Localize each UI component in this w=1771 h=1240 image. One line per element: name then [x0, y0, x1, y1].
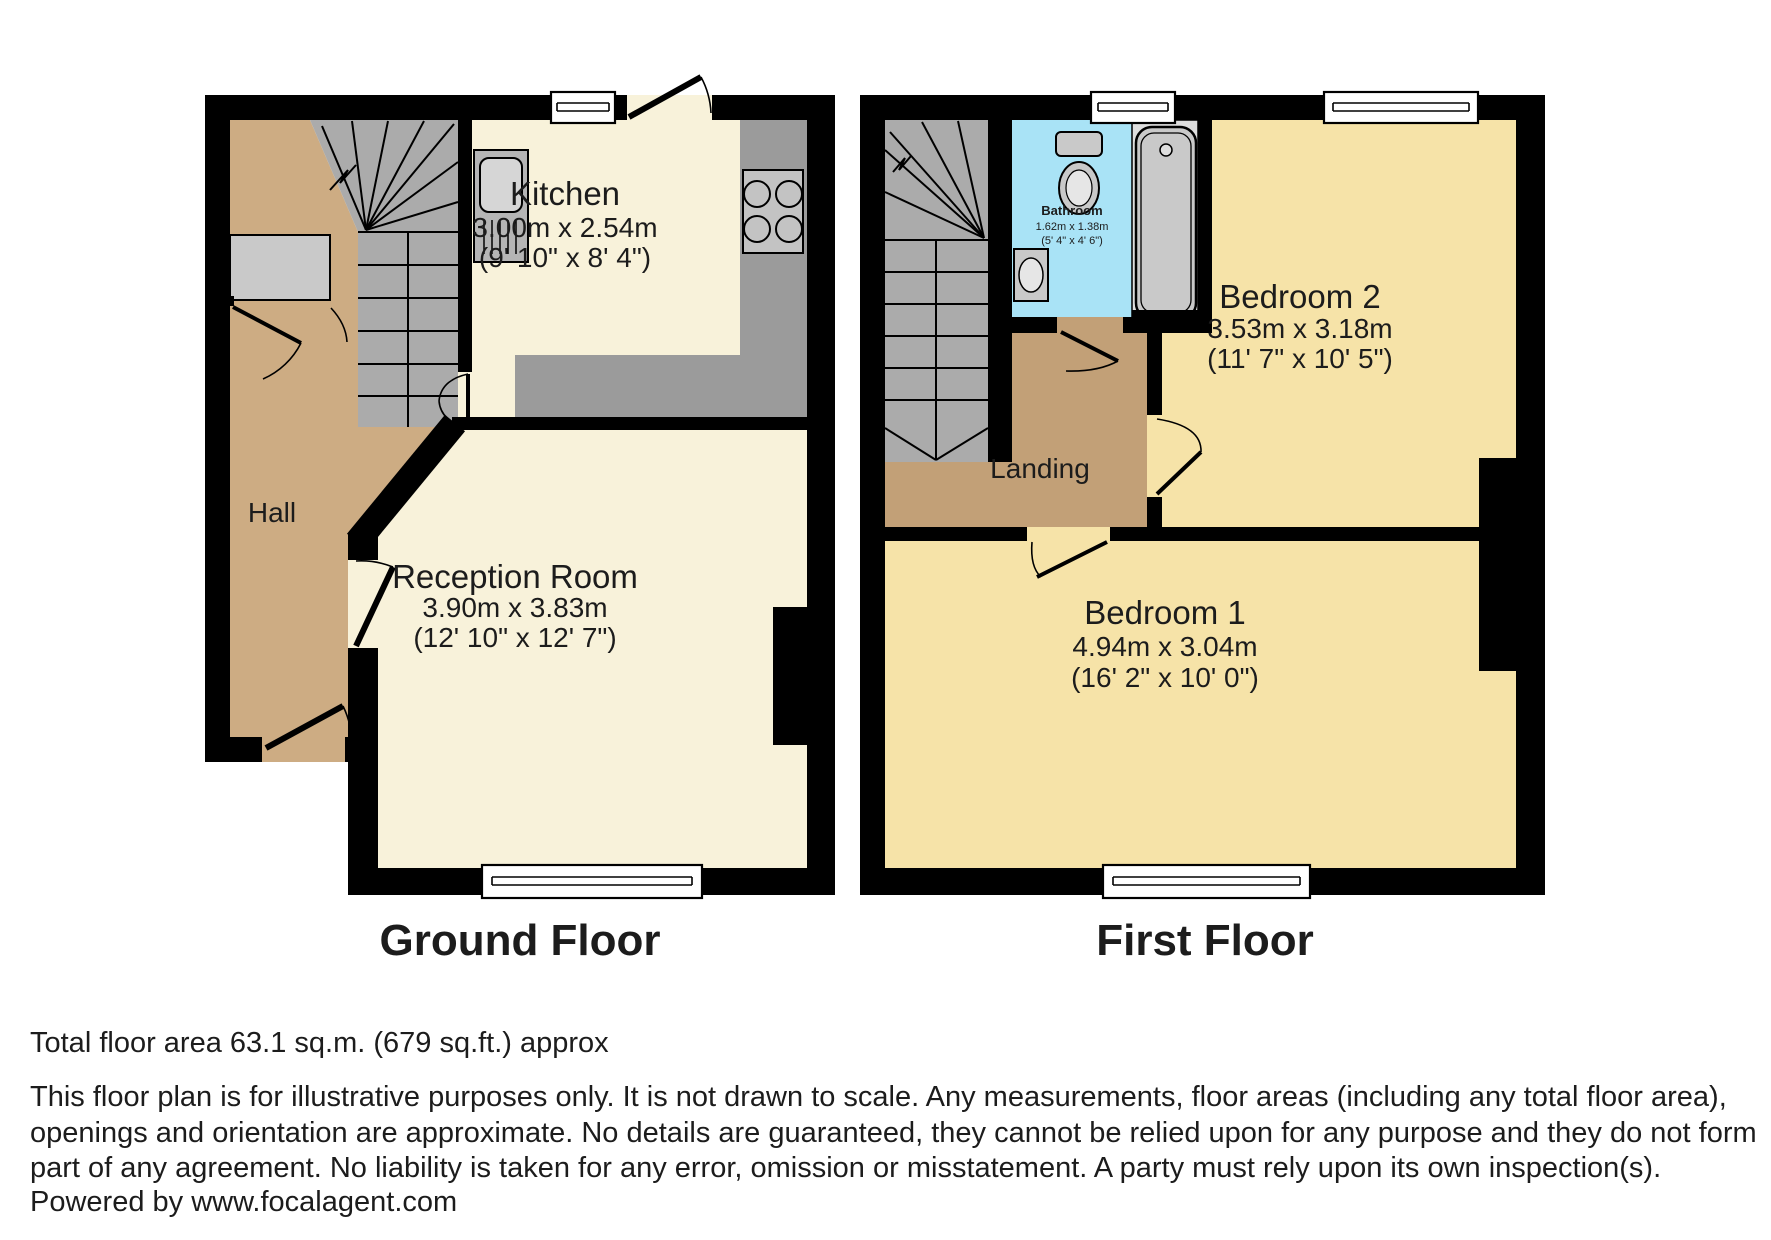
- bedroom1-label: Bedroom 1: [1084, 594, 1245, 631]
- kitchen-counter-bottom: [515, 355, 807, 417]
- bedroom1-dims-imperial: (16' 2" x 10' 0"): [1071, 662, 1259, 693]
- hall-cupboard: [230, 235, 330, 300]
- disclaimer-line-1: This floor plan is for illustrative purp…: [30, 1081, 1727, 1113]
- reception-dims-metric: 3.90m x 3.83m: [422, 592, 607, 623]
- disclaimer-line-3: part of any agreement. No liability is t…: [30, 1152, 1661, 1184]
- bathroom-window: [1091, 92, 1175, 123]
- bathroom-label: Bathroom: [1041, 203, 1102, 218]
- powered-by: Powered by www.focalagent.com: [30, 1186, 457, 1218]
- kitchen-dims-metric: 3.00m x 2.54m: [472, 212, 657, 243]
- hob: [743, 170, 803, 253]
- bedroom2-label: Bedroom 2: [1219, 278, 1380, 315]
- bedroom1-door-opening: [1027, 527, 1110, 541]
- first-floor-title: First Floor: [1096, 916, 1314, 965]
- floorplan-page: Kitchen 3.00m x 2.54m (9' 10" x 8' 4") H…: [0, 0, 1771, 1240]
- bathroom-dims-imperial: (5' 4" x 4' 6"): [1041, 235, 1103, 247]
- kitchen-back-door-opening: [627, 95, 712, 120]
- ground-floor-title: Ground Floor: [379, 916, 660, 965]
- hall-label: Hall: [248, 497, 296, 528]
- bedroom1-dims-metric: 4.94m x 3.04m: [1072, 631, 1257, 662]
- bedroom1-room: [885, 540, 1516, 868]
- bedroom2-door-opening: [1147, 415, 1162, 497]
- ground-floor-plan: Kitchen 3.00m x 2.54m (9' 10" x 8' 4") H…: [205, 77, 835, 898]
- toilet: [1056, 132, 1102, 214]
- bedroom1-window: [1103, 865, 1310, 898]
- floorplan-drawing: Kitchen 3.00m x 2.54m (9' 10" x 8' 4") H…: [0, 0, 1771, 1240]
- bedroom2-dims-metric: 3.53m x 3.18m: [1207, 313, 1392, 344]
- bathtub: [1136, 127, 1196, 319]
- bedroom2-dims-imperial: (11' 7" x 10' 5"): [1207, 343, 1393, 374]
- kitchen-dims-imperial: (9' 10" x 8' 4"): [479, 242, 651, 273]
- bathroom-dims-metric: 1.62m x 1.38m: [1036, 221, 1109, 233]
- total-floor-area: Total floor area 63.1 sq.m. (679 sq.ft.)…: [30, 1027, 609, 1059]
- reception-label: Reception Room: [392, 558, 638, 595]
- bedroom2-window: [1324, 92, 1478, 123]
- wash-basin: [1014, 249, 1048, 301]
- reception-dims-imperial: (12' 10" x 12' 7"): [413, 622, 616, 653]
- first-floor-plan: Bathroom 1.62m x 1.38m (5' 4" x 4' 6") L…: [860, 92, 1545, 898]
- bathroom-door-opening: [1057, 317, 1123, 333]
- disclaimer-line-2: openings and orientation are approximate…: [30, 1117, 1757, 1149]
- kitchen-window: [551, 92, 615, 123]
- reception-window: [482, 865, 702, 898]
- landing-label: Landing: [990, 453, 1090, 484]
- kitchen-label: Kitchen: [510, 175, 620, 212]
